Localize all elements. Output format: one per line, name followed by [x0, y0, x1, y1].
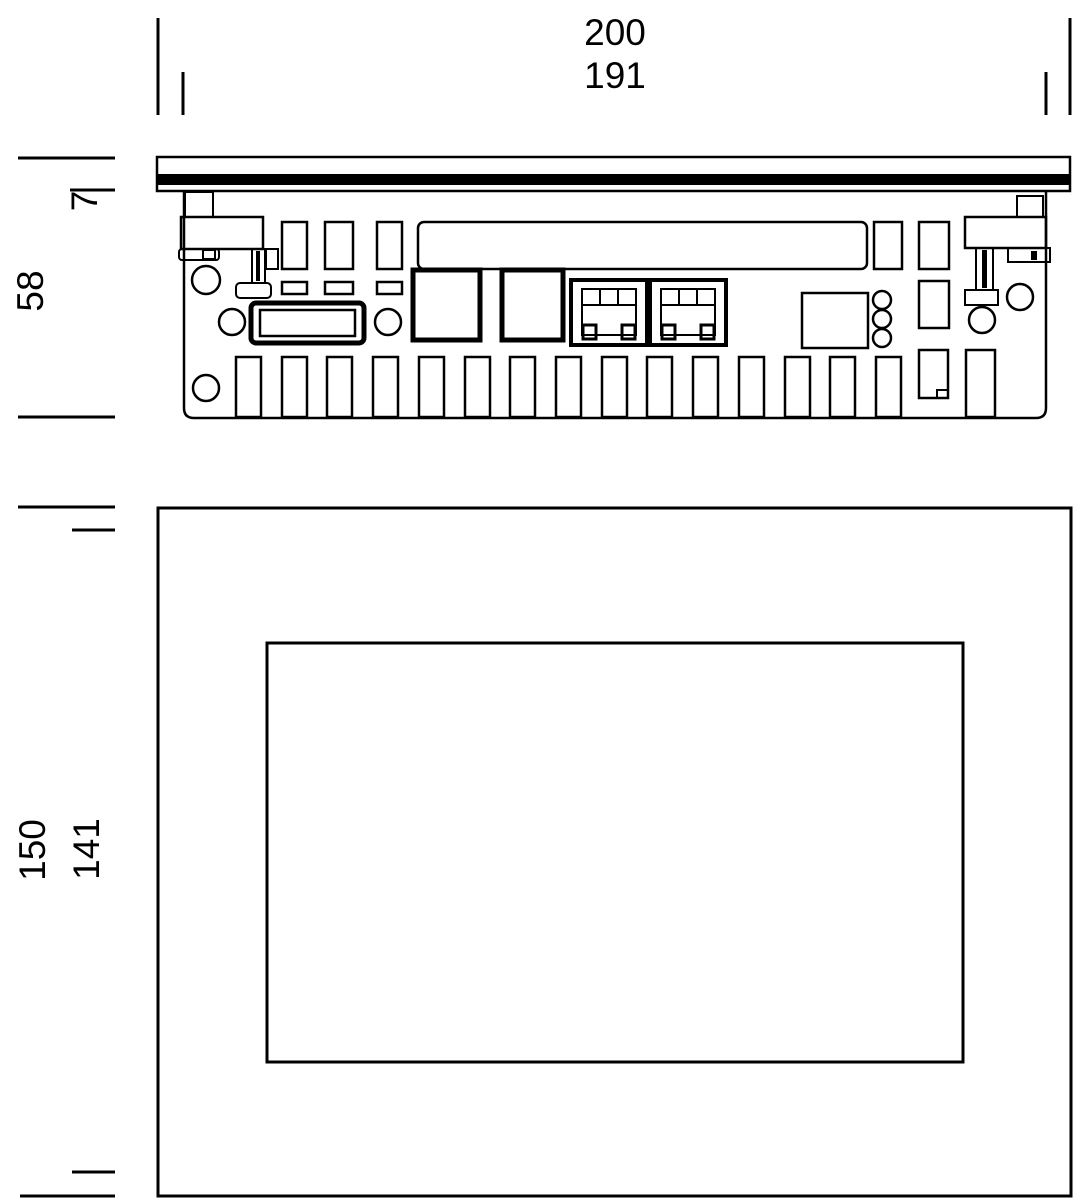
dim-label-total-depth: 58: [10, 270, 51, 311]
right-mounting-clamp: [965, 196, 1050, 333]
clamp-screw-shaft-left: [256, 251, 260, 281]
mounting-hole: [1007, 284, 1033, 310]
bezel-gasket-band: [158, 174, 1069, 185]
component-box: [802, 293, 868, 348]
terminal-pin: [510, 357, 535, 417]
technical-drawing-canvas: 200 191 7 58 150 141: [0, 0, 1079, 1200]
capacitor: [325, 222, 353, 269]
smd-component: [325, 282, 353, 294]
clamp-nut-left: [203, 250, 215, 259]
usb-connector: [502, 270, 563, 340]
smd-component: [282, 282, 307, 294]
capacitor: [874, 222, 902, 269]
indicator-circle: [873, 291, 891, 309]
indicator-circles: [873, 291, 891, 347]
usb-connector: [413, 270, 480, 340]
clamp-block-left: [181, 217, 263, 249]
clamp-foot-right: [965, 290, 998, 305]
rj45-cavity: [582, 289, 636, 335]
left-mounting-clamp: [179, 192, 278, 401]
terminal-pin: [236, 357, 261, 417]
terminal-pin: [373, 357, 398, 417]
display-cutout: [267, 643, 963, 1062]
component-block: [966, 350, 995, 417]
smd-component: [377, 282, 402, 294]
mounting-hole: [969, 307, 995, 333]
clamp-foot-left: [236, 283, 271, 298]
mounting-hole: [219, 309, 245, 335]
terminal-pin: [282, 357, 307, 417]
capacitor-row: [282, 222, 402, 294]
dim-label-height-inner: 141: [66, 818, 107, 880]
clamp-step-left: [185, 192, 213, 217]
dim-label-height-outer: 150: [12, 819, 53, 881]
dimension-drawing: 200 191 7 58 150 141: [0, 0, 1079, 1200]
rj45-latch-foot: [701, 325, 714, 339]
terminal-pin: [739, 357, 764, 417]
rj45-latch-foot: [662, 325, 675, 339]
dim-label-width-inner: 191: [584, 55, 646, 96]
terminal-pin: [876, 357, 901, 417]
indicator-circle: [873, 310, 891, 328]
capacitor: [919, 222, 949, 269]
capacitor: [282, 222, 307, 269]
front-bezel: [157, 157, 1070, 191]
rj45-latch-foot: [583, 325, 596, 339]
terminal-pin: [693, 357, 718, 417]
front-view: [158, 508, 1071, 1196]
mounting-hole: [193, 375, 219, 401]
terminal-pin: [830, 357, 855, 417]
terminal-pin: [602, 357, 627, 417]
terminal-pin: [556, 357, 581, 417]
terminal-pin: [465, 357, 490, 417]
clamp-nut-right: [1031, 251, 1037, 260]
capacitor: [919, 281, 949, 328]
clamp-step-right: [1017, 196, 1043, 217]
edge-connector: [251, 303, 364, 343]
heatsink-bar: [418, 222, 867, 269]
clamp-screw-shaft-right: [982, 250, 987, 288]
clamp-bar-right: [1008, 248, 1050, 262]
rj45-latch-foot: [622, 325, 635, 339]
edge-connector-cavity: [260, 310, 355, 336]
terminal-pin: [647, 357, 672, 417]
ethernet-port-right: [650, 280, 726, 345]
ethernet-port-left: [571, 280, 647, 345]
front-panel-outline: [158, 508, 1071, 1196]
clamp-block-right: [965, 217, 1046, 248]
side-view: [157, 157, 1070, 418]
indicator-circle: [873, 329, 891, 347]
mounting-hole: [375, 309, 401, 335]
dim-label-width-outer: 200: [584, 12, 646, 53]
rj45-cavity: [661, 289, 715, 335]
terminal-pin: [419, 357, 444, 417]
capacitor: [377, 222, 402, 269]
dim-label-bezel-depth: 7: [64, 191, 105, 212]
terminal-pin-row: [236, 357, 901, 417]
dimension-labels: 200 191 7 58 150 141: [10, 12, 646, 881]
terminal-pin: [327, 357, 352, 417]
terminal-pin: [785, 357, 810, 417]
mounting-hole: [192, 266, 220, 294]
clamp-tab-left: [266, 249, 278, 269]
